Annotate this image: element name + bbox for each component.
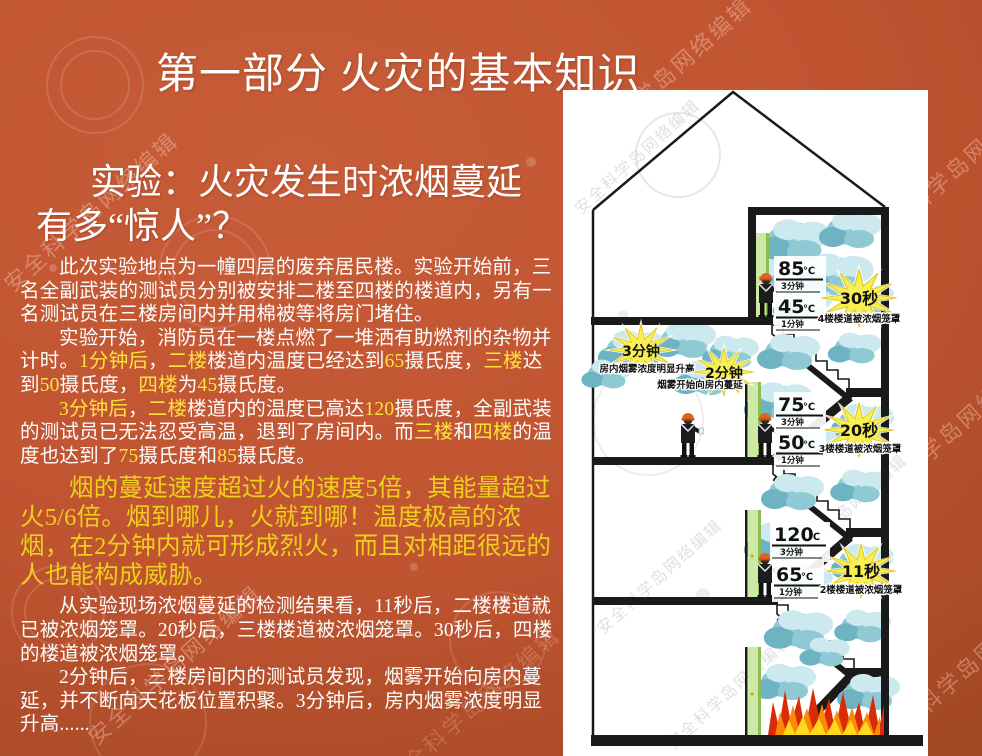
highlighted-text: 120 (364, 399, 394, 420)
text-segment: 摄氏度， (60, 375, 139, 396)
temp-2f-1min: 65 ℃ 1分钟 (772, 562, 824, 602)
svg-text:30秒: 30秒 (840, 289, 878, 308)
body-text: 此次实验地点为一幢四层的废弃居民楼。实验开始前，三名全副武装的测试员分别被安排二… (20, 256, 554, 737)
svg-text:75: 75 (778, 394, 804, 416)
highlighted-text: 75 (119, 446, 139, 467)
svg-text:℃: ℃ (803, 402, 815, 413)
highlighted-text: 50 (40, 375, 60, 396)
text-segment: 此次实验地点为一幢四层的废弃居民楼。实验开始前，三名全副武装的测试员分别被安排二… (20, 257, 552, 325)
svg-text:3楼楼道被浓烟笼罩: 3楼楼道被浓烟笼罩 (819, 443, 902, 455)
text-segment: 摄氏度。 (217, 375, 296, 396)
svg-text:85: 85 (778, 258, 804, 280)
text-segment: 摄氏度， (405, 351, 484, 372)
highlighted-text: 四楼 (473, 422, 512, 443)
highlighted-text: 3分钟后 (59, 399, 128, 420)
temp-4f-3min: 85 ℃ 3分钟 (774, 256, 826, 296)
text-segment: 烟的蔓延速度超过火的速度5倍，其能量超过火5/6倍。烟到哪儿，火就到哪！温度极高… (20, 475, 551, 589)
highlighted-text: 65 (385, 351, 405, 372)
temp-3f-3min: 75 ℃ 3分钟 (774, 392, 826, 432)
experiment-subtitle: 实验：火灾发生时浓烟蔓延有多“惊人”？ (36, 160, 544, 248)
highlighted-text: 85 (217, 446, 237, 467)
svg-text:℃: ℃ (803, 440, 815, 451)
text-segment: ， (128, 399, 148, 420)
svg-text:℃: ℃ (801, 572, 813, 583)
text-segment: 从实验现场浓烟蔓延的检测结果看，11秒后，二楼楼道就已被浓烟笼罩。20秒后，三楼… (20, 596, 552, 664)
svg-text:3分钟: 3分钟 (781, 417, 804, 428)
text-segment: 为 (178, 375, 198, 396)
svg-text:20秒: 20秒 (840, 421, 878, 440)
highlighted-text: 二楼 (148, 399, 187, 420)
svg-text:3分钟: 3分钟 (781, 281, 804, 292)
svg-text:65: 65 (776, 564, 802, 586)
svg-text:11秒: 11秒 (842, 562, 880, 581)
svg-text:2楼楼道被浓烟笼罩: 2楼楼道被浓烟笼罩 (820, 584, 903, 596)
svg-text:℃: ℃ (808, 532, 820, 543)
body-paragraph: 从实验现场浓烟蔓延的检测结果看，11秒后，二楼楼道就已被浓烟笼罩。20秒后，三楼… (20, 595, 554, 666)
svg-text:1分钟: 1分钟 (781, 319, 804, 330)
building-cross-section: 安全科学岛网络编辑 安全科学岛网络编辑 安全科学岛网络编辑 安全科学岛网络编辑 (563, 90, 928, 756)
svg-text:45: 45 (778, 296, 804, 318)
svg-text:1分钟: 1分钟 (781, 455, 804, 466)
svg-text:安全科学岛网络编辑: 安全科学岛网络编辑 (571, 95, 704, 218)
svg-text:烟雾开始向房内蔓延: 烟雾开始向房内蔓延 (657, 379, 743, 391)
text-segment: 摄氏度和 (138, 446, 217, 467)
text-segment: 楼道内的温度已高达 (187, 399, 364, 420)
body-paragraph-emphasis: 烟的蔓延速度超过火的速度5倍，其能量超过火5/6倍。烟到哪儿，火就到哪！温度极高… (20, 474, 554, 590)
svg-text:℃: ℃ (803, 266, 815, 277)
svg-text:3分钟: 3分钟 (622, 343, 660, 360)
text-segment: 2分钟后，三楼房间内的测试员发现，烟雾开始向房内蔓延，并不断向天花板位置积聚。3… (20, 667, 542, 735)
text-segment: 楼道内温度已经达到 (207, 351, 384, 372)
slide: 安全科学岛网络编辑 安全科学岛网络编辑 安全科学岛网络编辑 安全科学岛网络编辑 … (0, 0, 982, 756)
svg-text:3分钟: 3分钟 (780, 547, 803, 558)
body-paragraph: 此次实验地点为一幢四层的废弃居民楼。实验开始前，三名全副武装的测试员分别被安排二… (20, 256, 554, 327)
highlighted-text: 三楼 (483, 351, 522, 372)
text-segment: 和 (453, 422, 473, 443)
burst-20s: 20秒 3楼楼道被浓烟笼罩 (816, 397, 903, 463)
highlighted-text: 二楼 (168, 351, 207, 372)
body-paragraph: 2分钟后，三楼房间内的测试员发现，烟雾开始向房内蔓延，并不断向天花板位置积聚。3… (20, 666, 554, 737)
highlighted-text: 四楼 (138, 375, 177, 396)
text-segment: 摄氏度。 (237, 446, 316, 467)
highlighted-text: 1分钟后 (79, 351, 148, 372)
temperature-labels: 85 ℃ 3分钟 45 ℃ 1分钟 75 ℃ (770, 256, 830, 602)
highlighted-text: 三楼 (414, 422, 453, 443)
svg-text:房内烟雾浓度明显升高: 房内烟雾浓度明显升高 (599, 363, 695, 375)
body-paragraph: 实验开始，消防员在一楼点燃了一堆洒有助燃剂的杂物并计时。1分钟后，二楼楼道内温度… (20, 327, 554, 398)
highlighted-text: 45 (198, 375, 218, 396)
door-1f (748, 647, 761, 735)
svg-text:℃: ℃ (803, 304, 815, 315)
temp-2f-3min: 120 ℃ 3分钟 (770, 522, 830, 562)
svg-text:4楼楼道被浓烟笼罩: 4楼楼道被浓烟笼罩 (818, 313, 901, 325)
svg-text:50: 50 (778, 432, 804, 454)
text-segment: ， (148, 351, 168, 372)
smoke-spread-diagram: 安全科学岛网络编辑 安全科学岛网络编辑 安全科学岛网络编辑 安全科学岛网络编辑 (563, 90, 928, 756)
body-paragraph: 3分钟后，二楼楼道内的温度已高达120摄氏度，全副武装的测试员已无法忍受高温，退… (20, 398, 554, 469)
svg-text:1分钟: 1分钟 (779, 587, 802, 598)
svg-text:安全科学岛网络编辑: 安全科学岛网络编辑 (593, 515, 726, 638)
